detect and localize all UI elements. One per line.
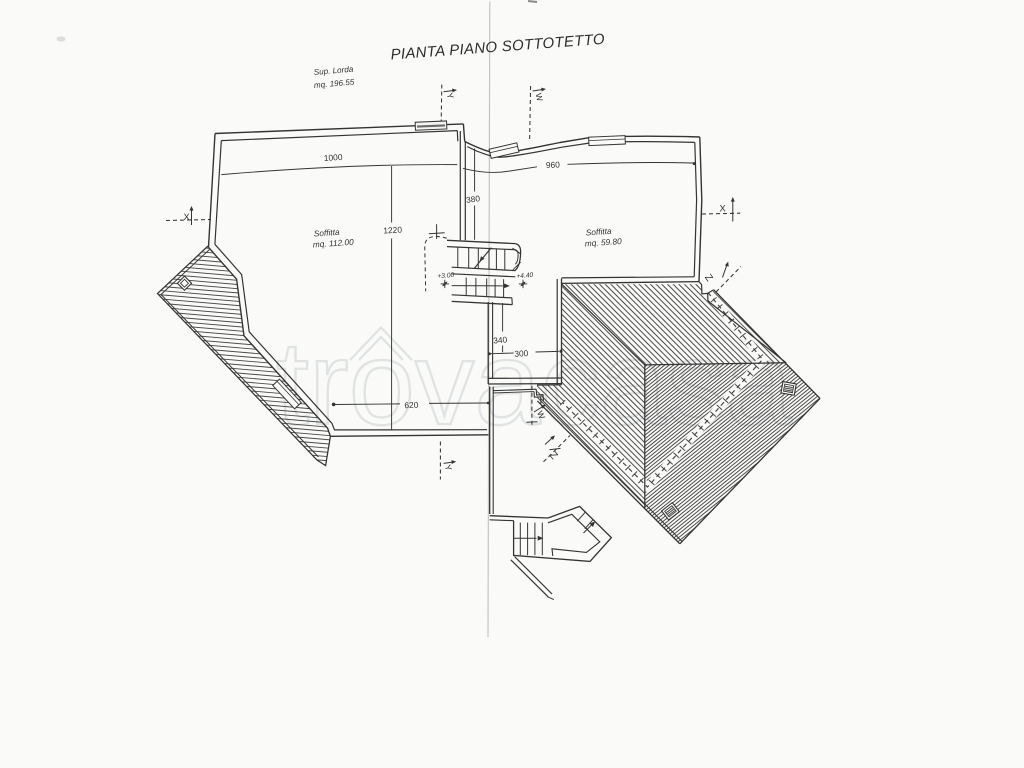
svg-text:X: X xyxy=(184,212,190,222)
svg-text:1220: 1220 xyxy=(383,225,402,236)
svg-text:380: 380 xyxy=(465,193,481,205)
svg-text:1000: 1000 xyxy=(324,152,344,163)
svg-text:X: X xyxy=(720,204,726,214)
svg-text:340: 340 xyxy=(493,334,508,345)
svg-text:Soffitta: Soffitta xyxy=(313,227,340,239)
svg-text:960: 960 xyxy=(546,160,561,170)
svg-text:300: 300 xyxy=(514,348,529,359)
svg-text:+3.00: +3.00 xyxy=(437,272,455,280)
svg-text:Soffitta: Soffitta xyxy=(585,226,612,238)
svg-text:620: 620 xyxy=(404,400,419,410)
svg-text:+4.40: +4.40 xyxy=(516,272,534,280)
